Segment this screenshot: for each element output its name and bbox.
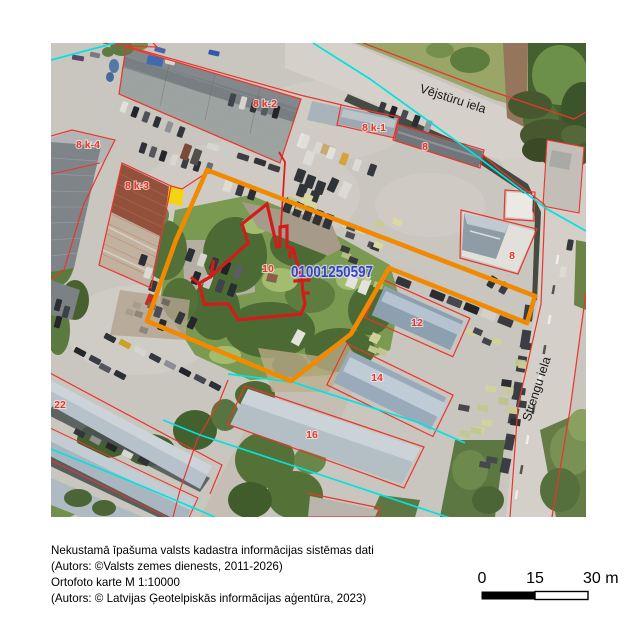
svg-text:(Autors: © Latvijas Ģeotelpisk: (Autors: © Latvijas Ģeotelpiskās informā… [51,592,366,605]
svg-text:01001250597: 01001250597 [291,264,373,281]
svg-text:0: 0 [478,570,487,587]
svg-text:8 k-1: 8 k-1 [362,122,386,134]
svg-text:(Autors: ©Valsts zemes dienest: (Autors: ©Valsts zemes dienests, 2011-20… [51,560,283,573]
svg-text:8 k-2: 8 k-2 [253,98,277,110]
svg-text:15: 15 [526,570,544,587]
svg-text:8: 8 [422,141,428,153]
svg-text:8 k-3: 8 k-3 [125,180,149,192]
svg-text:30 m: 30 m [583,570,619,587]
svg-text:16: 16 [306,429,318,441]
svg-text:8: 8 [509,250,515,262]
svg-text:14: 14 [371,372,383,384]
svg-text:10: 10 [262,263,274,275]
svg-text:22: 22 [54,399,66,411]
svg-text:Nekustamā īpašuma valsts kadas: Nekustamā īpašuma valsts kadastra inform… [51,544,374,557]
svg-text:12: 12 [411,317,423,329]
svg-text:Ortofoto karte M 1:10000: Ortofoto karte M 1:10000 [51,576,180,589]
svg-text:8 k-4: 8 k-4 [76,139,100,151]
